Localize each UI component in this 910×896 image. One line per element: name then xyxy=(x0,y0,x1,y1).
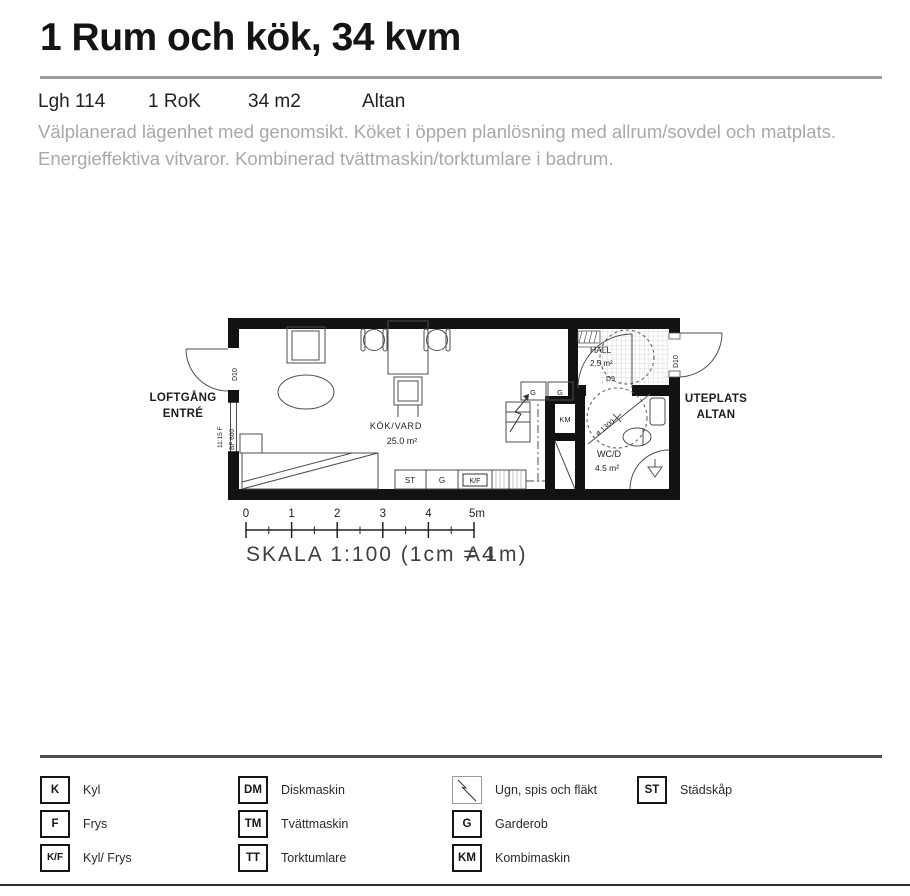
legend-code: ST xyxy=(645,784,660,796)
hall-floor xyxy=(578,329,669,385)
room-label-wc: WC/D xyxy=(597,449,621,459)
door-label-d10-left: D10 xyxy=(232,368,239,381)
legend-label: Tvättmaskin xyxy=(281,817,348,831)
door-label-d10-right: D10 xyxy=(673,355,680,368)
legend-divider xyxy=(40,755,882,758)
paper-size: A4 xyxy=(466,543,496,566)
legend-code: K xyxy=(51,784,59,796)
label-loftgang: LOFTGÅNG xyxy=(150,391,217,404)
door-label-d9: D9 xyxy=(606,376,615,383)
legend-item-garderob: G Garderob xyxy=(452,809,548,838)
window-label-1: 11:15 F xyxy=(217,426,224,448)
legend-code-box: DM xyxy=(238,776,268,804)
legend-code-box: G xyxy=(452,810,482,838)
label-altan: ALTAN xyxy=(697,409,736,421)
closet-label-g2: G xyxy=(557,388,563,397)
kitchen-label-st: ST xyxy=(405,476,415,485)
room-area-kok-vard: 25.0 m² xyxy=(387,436,418,446)
legend-item-torktumlare: TT Torktumlare xyxy=(238,843,346,872)
label-entre: ENTRÉ xyxy=(163,407,204,420)
kitchen-label-g: G xyxy=(439,476,445,485)
legend-item-frys: F Frys xyxy=(40,809,107,838)
legend-code: DM xyxy=(244,784,262,796)
legend-item-ugn-spis: Ugn, spis och fläkt xyxy=(452,775,597,804)
legend-item-diskmaskin: DM Diskmaskin xyxy=(238,775,345,804)
closet-label-g1: G xyxy=(530,388,536,397)
legend-label: Torktumlare xyxy=(281,851,346,865)
legend-code: TT xyxy=(246,852,260,864)
legend-code-box: ST xyxy=(637,776,667,804)
turning-circle-label: ø 1300 xyxy=(595,418,616,437)
legend-code-box: TM xyxy=(238,810,268,838)
scale-tick-5: 5m xyxy=(469,508,485,520)
legend-code: K/F xyxy=(47,852,63,863)
legend-label: Kyl xyxy=(83,783,100,797)
scale-tick-4: 4 xyxy=(425,508,432,520)
legend-item-kombimaskin: KM Kombimaskin xyxy=(452,843,570,872)
room-area-hall: 2.5 m² xyxy=(590,359,613,368)
legend-label: Städskåp xyxy=(680,783,732,797)
legend-label: Kyl/ Frys xyxy=(83,851,132,865)
legend-code: KM xyxy=(458,852,476,864)
legend-label: Kombimaskin xyxy=(495,851,570,865)
legend-item-kyl-frys: K/F Kyl/ Frys xyxy=(40,843,132,872)
room-label-kok-vard: KÖK/VARD xyxy=(370,421,422,431)
kitchen-label-kf: K/F xyxy=(470,478,481,485)
scale-bar xyxy=(246,522,474,538)
label-uteplats: UTEPLATS xyxy=(685,393,747,405)
legend-label: Frys xyxy=(83,817,107,831)
room-area-wc: 4.5 m² xyxy=(595,463,619,473)
fixture-label-km: KM xyxy=(559,415,570,424)
scale-tick-0: 0 xyxy=(243,508,249,520)
scale-tick-2: 2 xyxy=(334,508,340,520)
legend-item-tvattmaskin: TM Tvättmaskin xyxy=(238,809,348,838)
legend-code-box: K/F xyxy=(40,844,70,872)
legend-code: TM xyxy=(245,818,262,830)
legend-code-box: TT xyxy=(238,844,268,872)
scale-tick-3: 3 xyxy=(380,508,386,520)
legend-label: Garderob xyxy=(495,817,548,831)
window-label-2: BF 600 xyxy=(229,429,236,450)
legend-code-box: K xyxy=(40,776,70,804)
legend-label: Diskmaskin xyxy=(281,783,345,797)
legend-item-kyl: K Kyl xyxy=(40,775,100,804)
legend-label: Ugn, spis och fläkt xyxy=(495,783,597,797)
legend-code-box: F xyxy=(40,810,70,838)
floorplan-drawing: 0 1 2 3 4 5m SKALA 1:100 (1cm = 1m) A4 L… xyxy=(0,0,910,896)
scale-tick-1: 1 xyxy=(288,508,294,520)
legend-code: G xyxy=(463,818,472,830)
bottom-rule xyxy=(0,884,910,886)
room-label-hall: HALL xyxy=(590,345,612,355)
legend-code: F xyxy=(51,818,58,830)
stove-icon xyxy=(452,776,482,804)
legend-item-stadskap: ST Städskåp xyxy=(637,775,732,804)
legend-code-box: KM xyxy=(452,844,482,872)
